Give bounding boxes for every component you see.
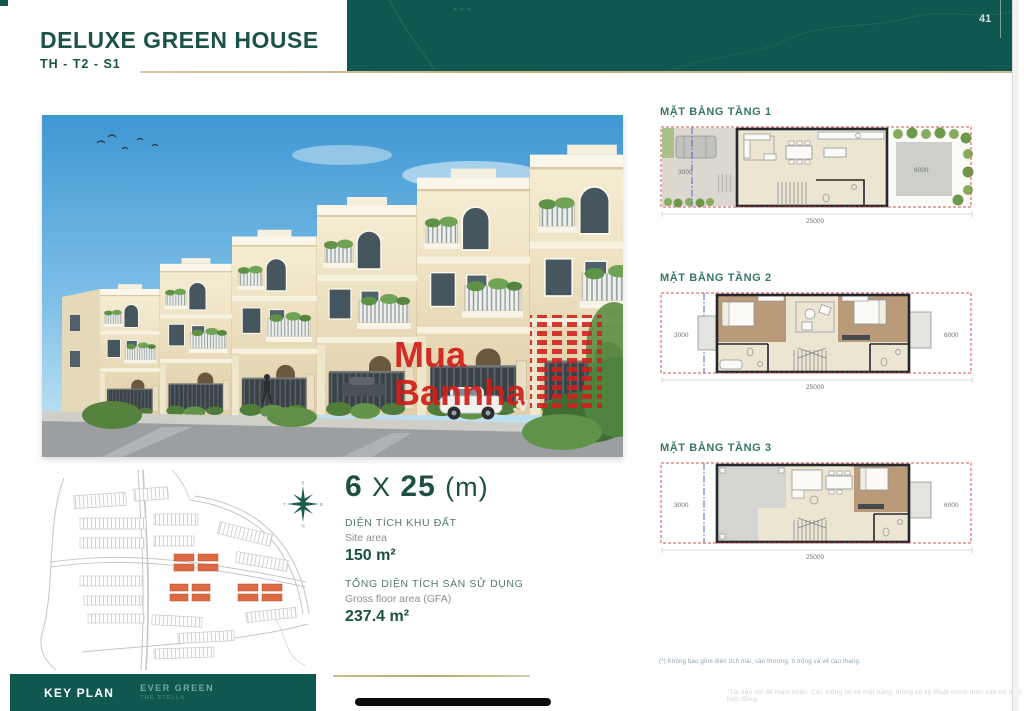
- page-number: 41: [979, 13, 991, 25]
- compass-east: Đ: [320, 502, 323, 507]
- plan3-dim-bottom: 25000: [806, 554, 824, 560]
- key-plan-map: [22, 466, 314, 674]
- key-plan-bar: KEY PLAN EVER GREEN THE STELLA: [10, 674, 316, 711]
- floor-plan-3: 3000 6000 25000: [658, 460, 980, 560]
- unit-code: TH - T2 - S1: [40, 57, 319, 71]
- page-edge-shadow: [1013, 0, 1019, 711]
- header-banner: 41: [347, 0, 1012, 72]
- plan1-dim-right: 6000: [914, 167, 929, 174]
- lot-unit: (m): [445, 472, 488, 502]
- page-title-block: DELUXE GREEN HOUSE TH - T2 - S1: [40, 27, 319, 71]
- lot-depth: 25: [400, 470, 435, 503]
- plan2-dim-bottom: 25000: [806, 384, 824, 390]
- floor-plan-3-label: MẶT BẰNG TẦNG 3: [660, 442, 980, 454]
- plan1-dim-left: 3000: [678, 169, 693, 176]
- gfa-group: TỔNG DIỆN TÍCH SÀN SỬ DỤNG Gross floor a…: [345, 578, 625, 626]
- project-name: EVER GREEN: [140, 684, 214, 694]
- page-number-divider: [1000, 0, 1001, 38]
- floor-plan-2: 3000 6000 25000: [658, 290, 980, 390]
- site-area-value: 150 m²: [345, 547, 625, 565]
- header-rule: [140, 71, 1012, 73]
- banner-map-decor: [347, 0, 1012, 72]
- project-subname: THE STELLA: [140, 695, 214, 701]
- corner-mark: [0, 0, 8, 6]
- plan1-dim-bottom: 25000: [806, 218, 824, 224]
- specs-block: 6 X 25 (m) DIỆN TÍCH KHU ĐẤT Site area 1…: [345, 470, 625, 626]
- floor-plan-1: 3000 6000 25000: [658, 124, 980, 224]
- lot-dimensions: 6 X 25 (m): [345, 470, 625, 504]
- building-render: Mua Bannha .vn: [42, 115, 623, 457]
- footnote-disclaimer: *Tài liệu chỉ để tham khảo. Các thông ti…: [727, 689, 1024, 703]
- page-title: DELUXE GREEN HOUSE: [40, 27, 319, 54]
- plan2-dim-right: 6000: [944, 332, 959, 339]
- site-area-label-vi: DIỆN TÍCH KHU ĐẤT: [345, 517, 625, 529]
- site-area-group: DIỆN TÍCH KHU ĐẤT Site area 150 m²: [345, 517, 625, 565]
- page-edge-line: [1012, 0, 1013, 711]
- floor-plan-1-label: MẶT BẰNG TẦNG 1: [660, 106, 980, 118]
- times-sign: X: [372, 472, 391, 502]
- bottom-black-bar: [355, 698, 551, 706]
- watermark-line2: Bannha: [394, 372, 527, 413]
- plan3-dim-right: 6000: [944, 502, 959, 509]
- watermark-line1: Mua: [394, 334, 467, 375]
- watermark-glyph-block: [530, 315, 602, 411]
- brochure-page: DELUXE GREEN HOUSE TH - T2 - S1 41: [0, 0, 1024, 711]
- project-logo: EVER GREEN THE STELLA: [140, 684, 214, 701]
- gfa-label-en: Gross floor area (GFA): [345, 593, 625, 605]
- plan3-dim-left: 3000: [674, 502, 689, 509]
- site-area-label-en: Site area: [345, 532, 625, 544]
- floor-plan-2-label: MẶT BẰNG TẦNG 2: [660, 272, 980, 284]
- building-render-art: Mua Bannha .vn: [42, 115, 623, 457]
- footnote-exclusions: (*) Không bao gồm diện tích mái, sân thư…: [659, 659, 861, 665]
- key-plan-label: KEY PLAN: [44, 686, 114, 700]
- plan2-dim-left: 3000: [674, 332, 689, 339]
- lot-width: 6: [345, 470, 363, 503]
- gfa-label-vi: TỔNG DIỆN TÍCH SÀN SỬ DỤNG: [345, 578, 625, 590]
- bottom-gold-rule: [333, 675, 530, 677]
- gfa-value: 237.4 m²: [345, 608, 625, 626]
